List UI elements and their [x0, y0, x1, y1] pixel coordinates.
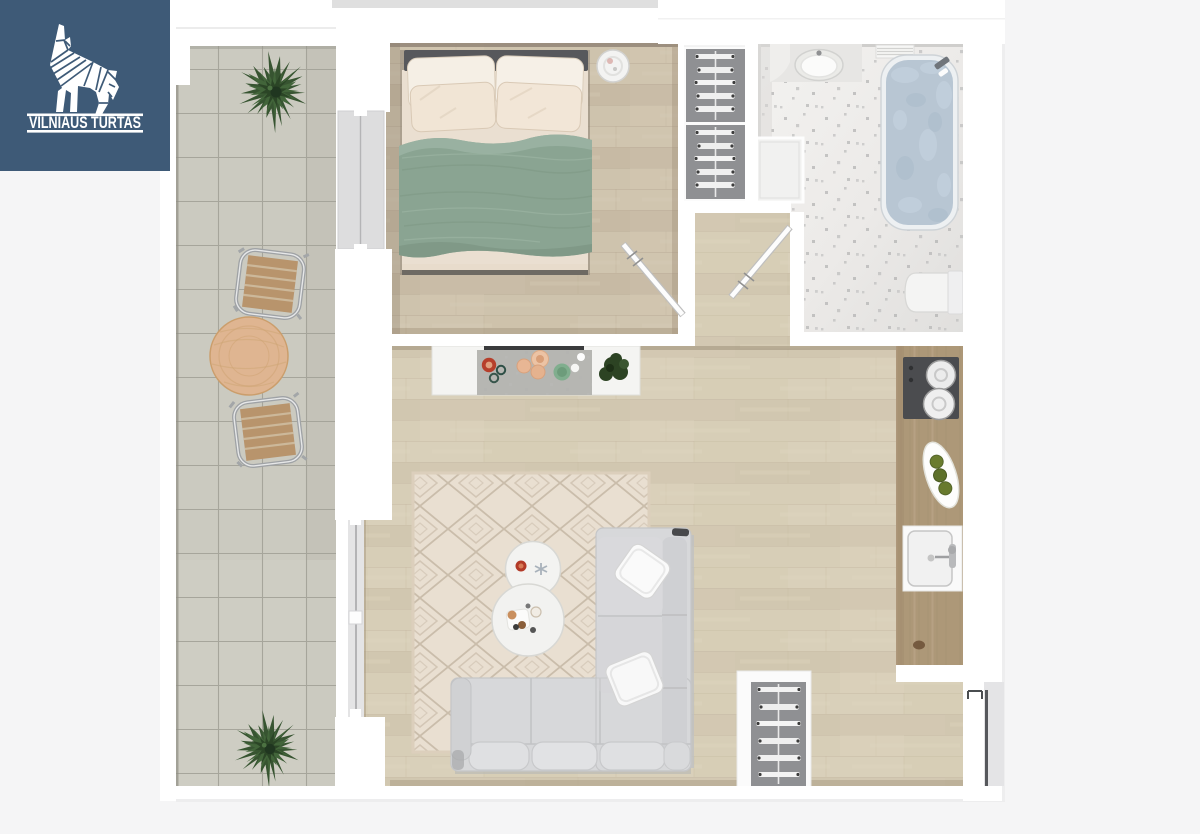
svg-text:VILNIAUS TURTAS: VILNIAUS TURTAS: [29, 114, 141, 132]
